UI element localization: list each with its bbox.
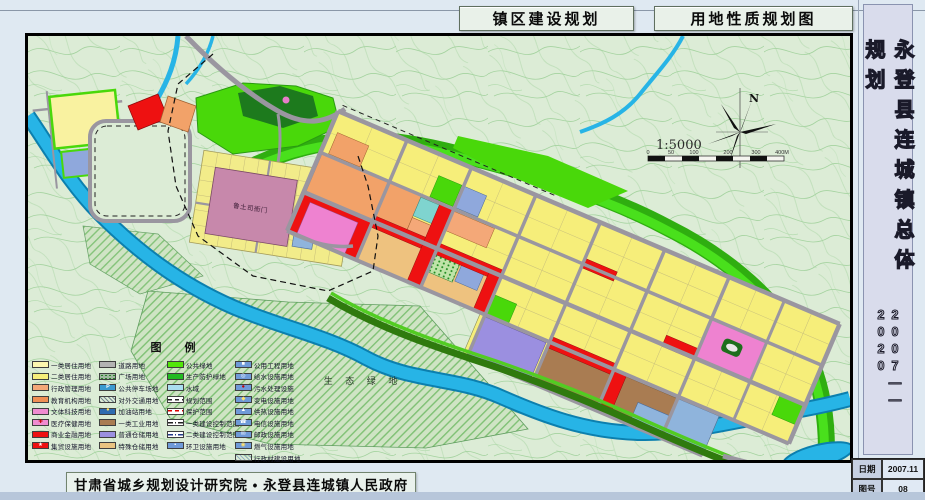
legend-label: 行政管理用地: [51, 383, 91, 393]
legend-label: 变电设施用地: [254, 395, 294, 405]
legend-label: 给水设施用地: [254, 371, 294, 381]
legend-label: 生产防护绿地: [186, 371, 226, 381]
legend-label: 规划范围: [186, 395, 213, 405]
legend-label: 公用工程用地: [254, 360, 294, 370]
legend-item: 广场用地: [99, 371, 164, 383]
legend-item: P公共停车场地: [99, 382, 164, 394]
legend-item: ◆变电设施用地: [235, 394, 324, 406]
legend-swatch: ●: [99, 408, 116, 415]
legend-label: 供热设施用地: [254, 406, 294, 416]
legend-swatch: [167, 373, 184, 380]
legend-label: 文体科技用地: [51, 406, 91, 416]
legend-item: ■公用工程用地: [235, 359, 324, 371]
legend-label: 行政村建设用地: [254, 453, 301, 463]
legend-item: 教育机构用地: [32, 394, 97, 406]
legend-item: 对外交通用地: [99, 394, 164, 406]
legend-swatch: [167, 396, 184, 403]
legend-label: 保护范围: [186, 406, 213, 416]
legend-swatch: [99, 431, 116, 438]
legend-swatch: [32, 408, 49, 415]
legend-swatch: P: [99, 384, 116, 391]
svg-text:400M: 400M: [775, 150, 789, 156]
legend-swatch: ☎: [235, 419, 252, 426]
legend-item: 一类工业用地: [99, 417, 164, 429]
legend-column: ■公用工程用地◎给水设施用地●污水处理设施◆变电设施用地▲供热设施用地☎电信设施…: [235, 359, 324, 463]
legend-swatch: [167, 431, 184, 438]
legend-item: 水域: [167, 382, 233, 394]
legend-label: 二类建设控制范围: [186, 429, 240, 439]
legend-label: 医疗保健用地: [51, 418, 91, 428]
legend-label: 公共停车场地: [118, 383, 158, 393]
date-value: 2007.11: [882, 459, 924, 479]
legend-swatch: [99, 396, 116, 403]
sheet-bottom-strip: [0, 492, 925, 500]
legend-label: 公共绿地: [186, 360, 213, 370]
legend-swatch: [32, 396, 49, 403]
legend-item: 行政村建设用地: [235, 452, 324, 464]
legend-swatch: [167, 384, 184, 391]
legend-item: 道路用地: [99, 359, 164, 371]
legend-swatch: [167, 419, 184, 426]
legend-swatch: [32, 361, 49, 368]
legend-item: 文体科技用地: [32, 405, 97, 417]
legend-label: 特殊仓储用地: [118, 441, 158, 451]
legend-item: 特殊仓储用地: [99, 440, 164, 452]
legend-item: 行政管理用地: [32, 382, 97, 394]
legend-swatch: ◎: [235, 373, 252, 380]
legend-item: ✚医疗保健用地: [32, 417, 97, 429]
legend-item: ◎给水设施用地: [235, 371, 324, 383]
legend-label: 燃气设施用地: [254, 441, 294, 451]
legend-label: 普通仓储用地: [118, 429, 158, 439]
legend-label: 教育机构用地: [51, 395, 91, 405]
legend-label: 对外交通用地: [118, 395, 158, 405]
legend-columns: 一类居住用地二类居住用地行政管理用地教育机构用地文体科技用地✚医疗保健用地商业金…: [32, 359, 324, 463]
svg-text:200: 200: [723, 150, 732, 156]
legend-label: 一类建设控制范围: [186, 418, 240, 428]
legend-item: 商业金融用地: [32, 429, 97, 441]
legend-item: 一类建设控制范围: [167, 417, 233, 429]
legend-item: 生产防护绿地: [167, 371, 233, 383]
legend-swatch: ◉: [235, 442, 252, 449]
legend-item: ☎电信设施用地: [235, 417, 324, 429]
legend-title: 图 例: [32, 339, 324, 355]
legend-item: 二类居住用地: [32, 371, 97, 383]
legend-swatch: [99, 373, 116, 380]
legend-column: 公共绿地生产防护绿地水域规划范围保护范围一类建设控制范围二类建设控制范围▪环卫设…: [167, 359, 233, 463]
map-frame: 鲁土司衙门: [25, 33, 853, 463]
legend-label: 一类工业用地: [118, 418, 158, 428]
legend-swatch: [99, 442, 116, 449]
legend-label: 污水处理设施: [254, 383, 294, 393]
title-box-construction-plan: 镇区建设规划: [459, 6, 634, 31]
legend-swatch: ▲: [235, 408, 252, 415]
legend-item: ◉燃气设施用地: [235, 440, 324, 452]
title-box-label: 镇区建设规划: [492, 8, 600, 29]
legend-swatch: [32, 431, 49, 438]
legend-swatch: ■: [235, 361, 252, 368]
legend-column: 一类居住用地二类居住用地行政管理用地教育机构用地文体科技用地✚医疗保健用地商业金…: [32, 359, 97, 463]
legend-swatch: [167, 361, 184, 368]
legend-item: 一类居住用地: [32, 359, 97, 371]
legend-swatch: [167, 408, 184, 415]
legend-swatch: ▪: [167, 442, 184, 449]
north-label: N: [749, 92, 759, 105]
sheet-years-vertical: 2007——2020: [874, 308, 902, 454]
svg-text:50: 50: [668, 150, 674, 156]
legend-swatch: [235, 454, 252, 461]
legend-swatch: ●: [235, 384, 252, 391]
legend-item: ▲供热设施用地: [235, 405, 324, 417]
credit-text: 甘肃省城乡规划设计研究院 • 永登县连城镇人民政府: [74, 474, 408, 494]
legend-label: 广场用地: [118, 371, 145, 381]
legend-label: 一类居住用地: [51, 360, 91, 370]
legend-label: 电信设施用地: [254, 418, 294, 428]
sheet-title-vertical: 永登县连城镇总体规划: [859, 39, 917, 298]
legend-item: 公共绿地: [167, 359, 233, 371]
legend-swatch: [99, 361, 116, 368]
date-label: 日期: [852, 459, 882, 479]
legend-label: 二类居住用地: [51, 371, 91, 381]
legend-swatch: ★: [32, 442, 49, 449]
legend-swatch: ✚: [32, 419, 49, 426]
sidebar-title-panel: 永登县连城镇总体规划 2007——2020: [863, 4, 913, 455]
legend: 图 例 一类居住用地二类居住用地行政管理用地教育机构用地文体科技用地✚医疗保健用…: [32, 339, 324, 463]
temple-marker: [283, 97, 290, 104]
legend-label: 水域: [186, 383, 199, 393]
legend-swatch: ✉: [235, 431, 252, 438]
legend-item: 二类建设控制范围: [167, 429, 233, 441]
legend-item: ✉邮政设施用地: [235, 429, 324, 441]
legend-label: 加油站用地: [118, 406, 152, 416]
eco-green-label: 生 态 绿 地: [324, 375, 403, 386]
legend-item: 普通仓储用地: [99, 429, 164, 441]
title-box-label: 用地性质规划图: [690, 8, 816, 29]
legend-label: 环卫设施用地: [186, 441, 226, 451]
legend-item: ●污水处理设施: [235, 382, 324, 394]
legend-item: ▪环卫设施用地: [167, 440, 233, 452]
legend-label: 道路用地: [118, 360, 145, 370]
legend-swatch: ◆: [235, 396, 252, 403]
legend-label: 商业金融用地: [51, 429, 91, 439]
legend-label: 集贸设施用地: [51, 441, 91, 451]
planning-sheet: { "header": { "box1": "镇区建设规划", "box2": …: [0, 0, 925, 500]
legend-label: 邮政设施用地: [254, 429, 294, 439]
legend-item: ●加油站用地: [99, 405, 164, 417]
legend-column: 道路用地广场用地P公共停车场地对外交通用地●加油站用地一类工业用地普通仓储用地特…: [99, 359, 164, 463]
svg-text:300: 300: [751, 150, 760, 156]
svg-text:0: 0: [646, 150, 649, 156]
legend-item: 保护范围: [167, 405, 233, 417]
legend-swatch: [99, 419, 116, 426]
svg-text:100: 100: [689, 150, 698, 156]
legend-item: 规划范围: [167, 394, 233, 406]
title-box-landuse-plan: 用地性质规划图: [654, 6, 853, 31]
legend-swatch: [32, 384, 49, 391]
legend-swatch: [32, 373, 49, 380]
legend-item: ★集贸设施用地: [32, 440, 97, 452]
